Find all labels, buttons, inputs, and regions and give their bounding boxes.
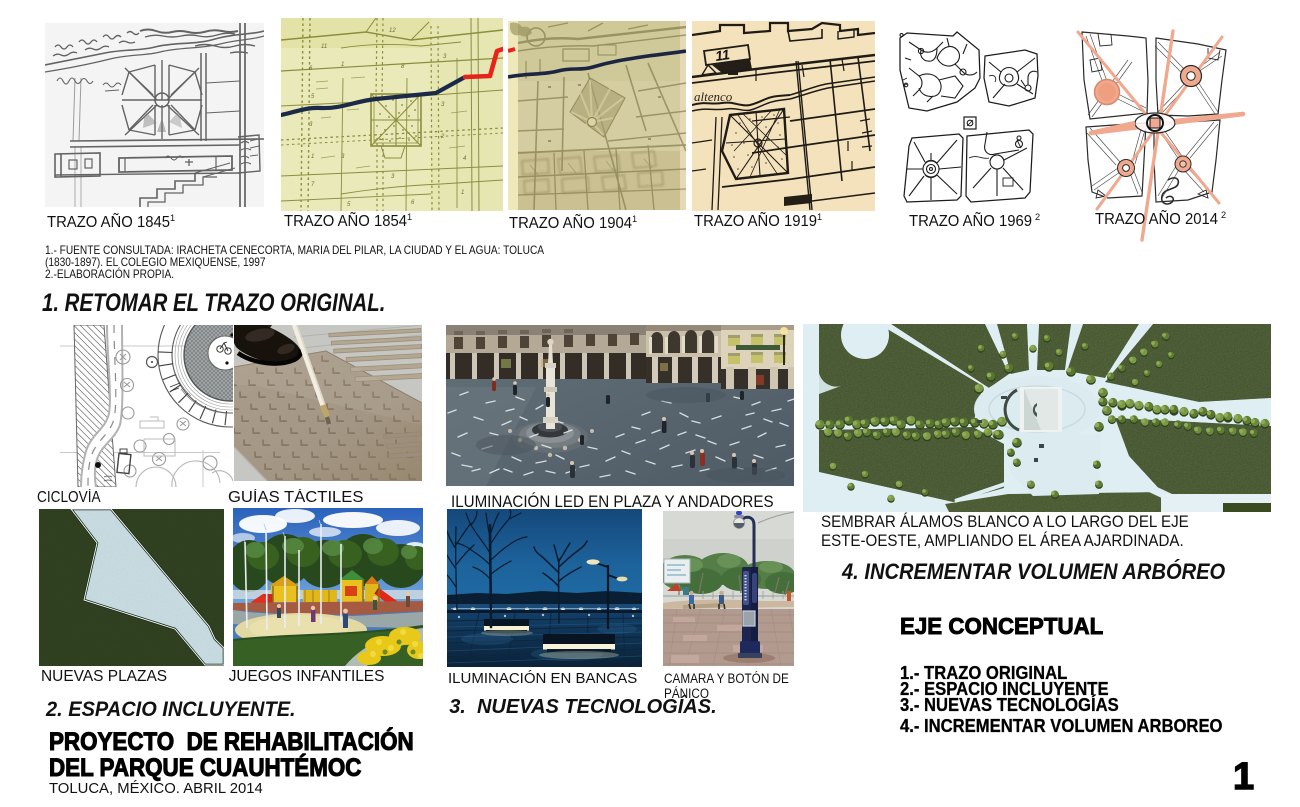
svg-text:11: 11 [714, 46, 731, 64]
svg-text:12: 12 [389, 28, 396, 34]
svg-text:1: 1 [341, 62, 344, 68]
svg-text:1: 1 [311, 154, 314, 160]
svg-text:altenco: altenco [694, 89, 733, 104]
svg-text:11: 11 [321, 44, 327, 50]
svg-text:2: 2 [440, 134, 445, 140]
svg-text:1: 1 [461, 190, 464, 196]
